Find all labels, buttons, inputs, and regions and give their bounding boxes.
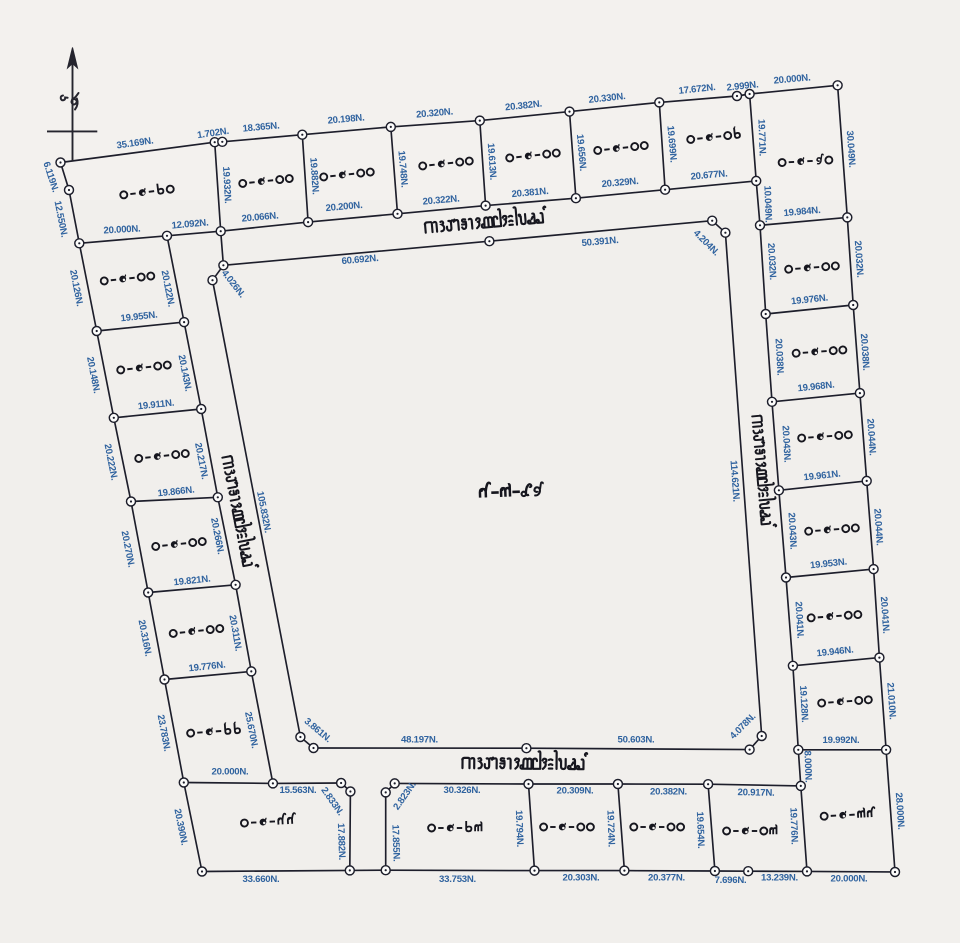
svg-text:19.794N.: 19.794N. [513, 810, 525, 847]
svg-text:20.038N.: 20.038N. [773, 338, 786, 375]
svg-text:8.000N.: 8.000N. [801, 750, 813, 782]
svg-text:19.771N.: 19.771N. [755, 119, 767, 156]
svg-text:33.660N.: 33.660N. [243, 874, 280, 885]
svg-text:19.932N.: 19.932N. [220, 166, 233, 203]
svg-text:20.382N.: 20.382N. [650, 787, 687, 798]
svg-text:20.309N.: 20.309N. [557, 786, 594, 797]
svg-text:19.776N.: 19.776N. [787, 807, 799, 844]
svg-text:50.603N.: 50.603N. [618, 735, 655, 746]
svg-text:20.043N.: 20.043N. [786, 512, 799, 549]
svg-text:48.197N.: 48.197N. [401, 735, 438, 746]
svg-text:20.000N.: 20.000N. [831, 874, 868, 885]
svg-text:20.043N.: 20.043N. [780, 425, 793, 462]
svg-text:20.000N.: 20.000N. [212, 767, 249, 778]
svg-text:30.326N.: 30.326N. [444, 785, 481, 796]
svg-text:20.032N.: 20.032N. [765, 243, 778, 280]
svg-text:20.303N.: 20.303N. [563, 873, 600, 884]
svg-text:13.239N.: 13.239N. [761, 873, 798, 884]
svg-text:20.000N.: 20.000N. [103, 224, 140, 237]
svg-text:19.992N.: 19.992N. [823, 735, 860, 746]
svg-text:19.654N.: 19.654N. [694, 811, 706, 848]
svg-text:10.049N.: 10.049N. [761, 185, 773, 222]
svg-text:20.041N.: 20.041N. [793, 601, 806, 638]
svg-text:17.882N.: 17.882N. [335, 823, 347, 860]
svg-text:17.855N.: 17.855N. [389, 824, 401, 861]
svg-text:19.128N.: 19.128N. [797, 685, 810, 722]
svg-text:20.917N.: 20.917N. [737, 787, 774, 799]
svg-text:7.696N.: 7.696N. [715, 875, 747, 886]
svg-text:19.724N.: 19.724N. [604, 810, 616, 847]
svg-text:20.377N.: 20.377N. [648, 873, 685, 884]
svg-text:33.753N.: 33.753N. [439, 874, 476, 885]
svg-text:15.563N.: 15.563N. [280, 785, 317, 796]
